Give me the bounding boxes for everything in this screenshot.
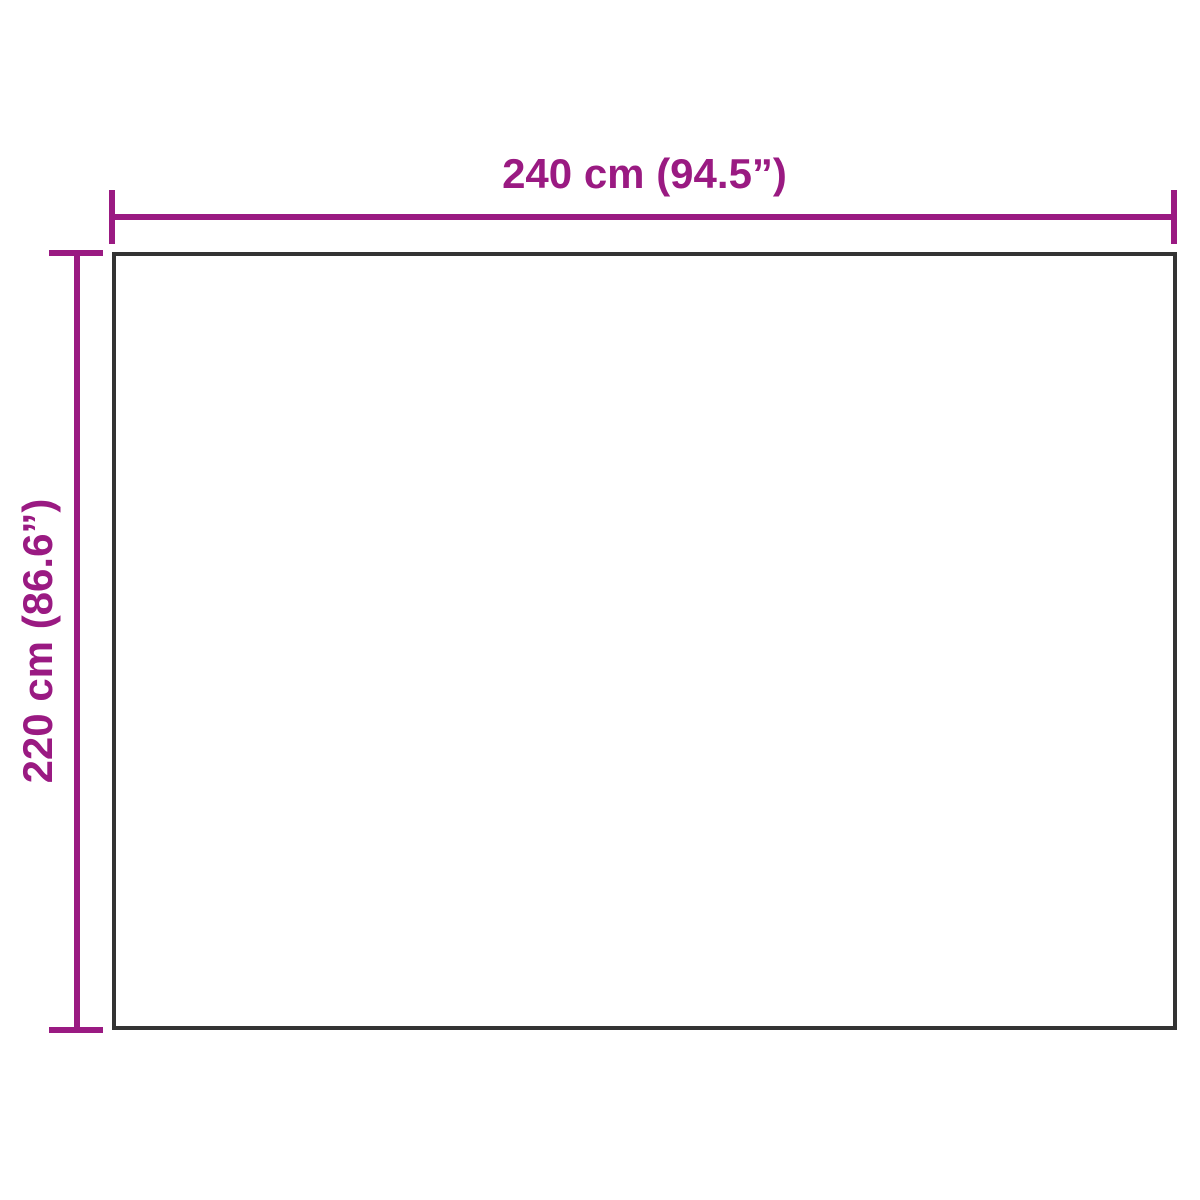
product-outline bbox=[112, 252, 1177, 1030]
height-dimension-line bbox=[74, 253, 80, 1030]
width-dimension-tick-right bbox=[1171, 190, 1177, 244]
height-dimension-label: 220 cm (86.6”) bbox=[17, 499, 59, 784]
width-dimension-line bbox=[112, 214, 1177, 220]
width-dimension-tick-left bbox=[109, 190, 115, 244]
height-dimension-tick-bottom bbox=[49, 1027, 103, 1033]
height-dimension-tick-top bbox=[49, 250, 103, 256]
dimension-diagram: 240 cm (94.5”) 220 cm (86.6”) bbox=[0, 0, 1200, 1200]
width-dimension-label: 240 cm (94.5”) bbox=[112, 153, 1177, 195]
